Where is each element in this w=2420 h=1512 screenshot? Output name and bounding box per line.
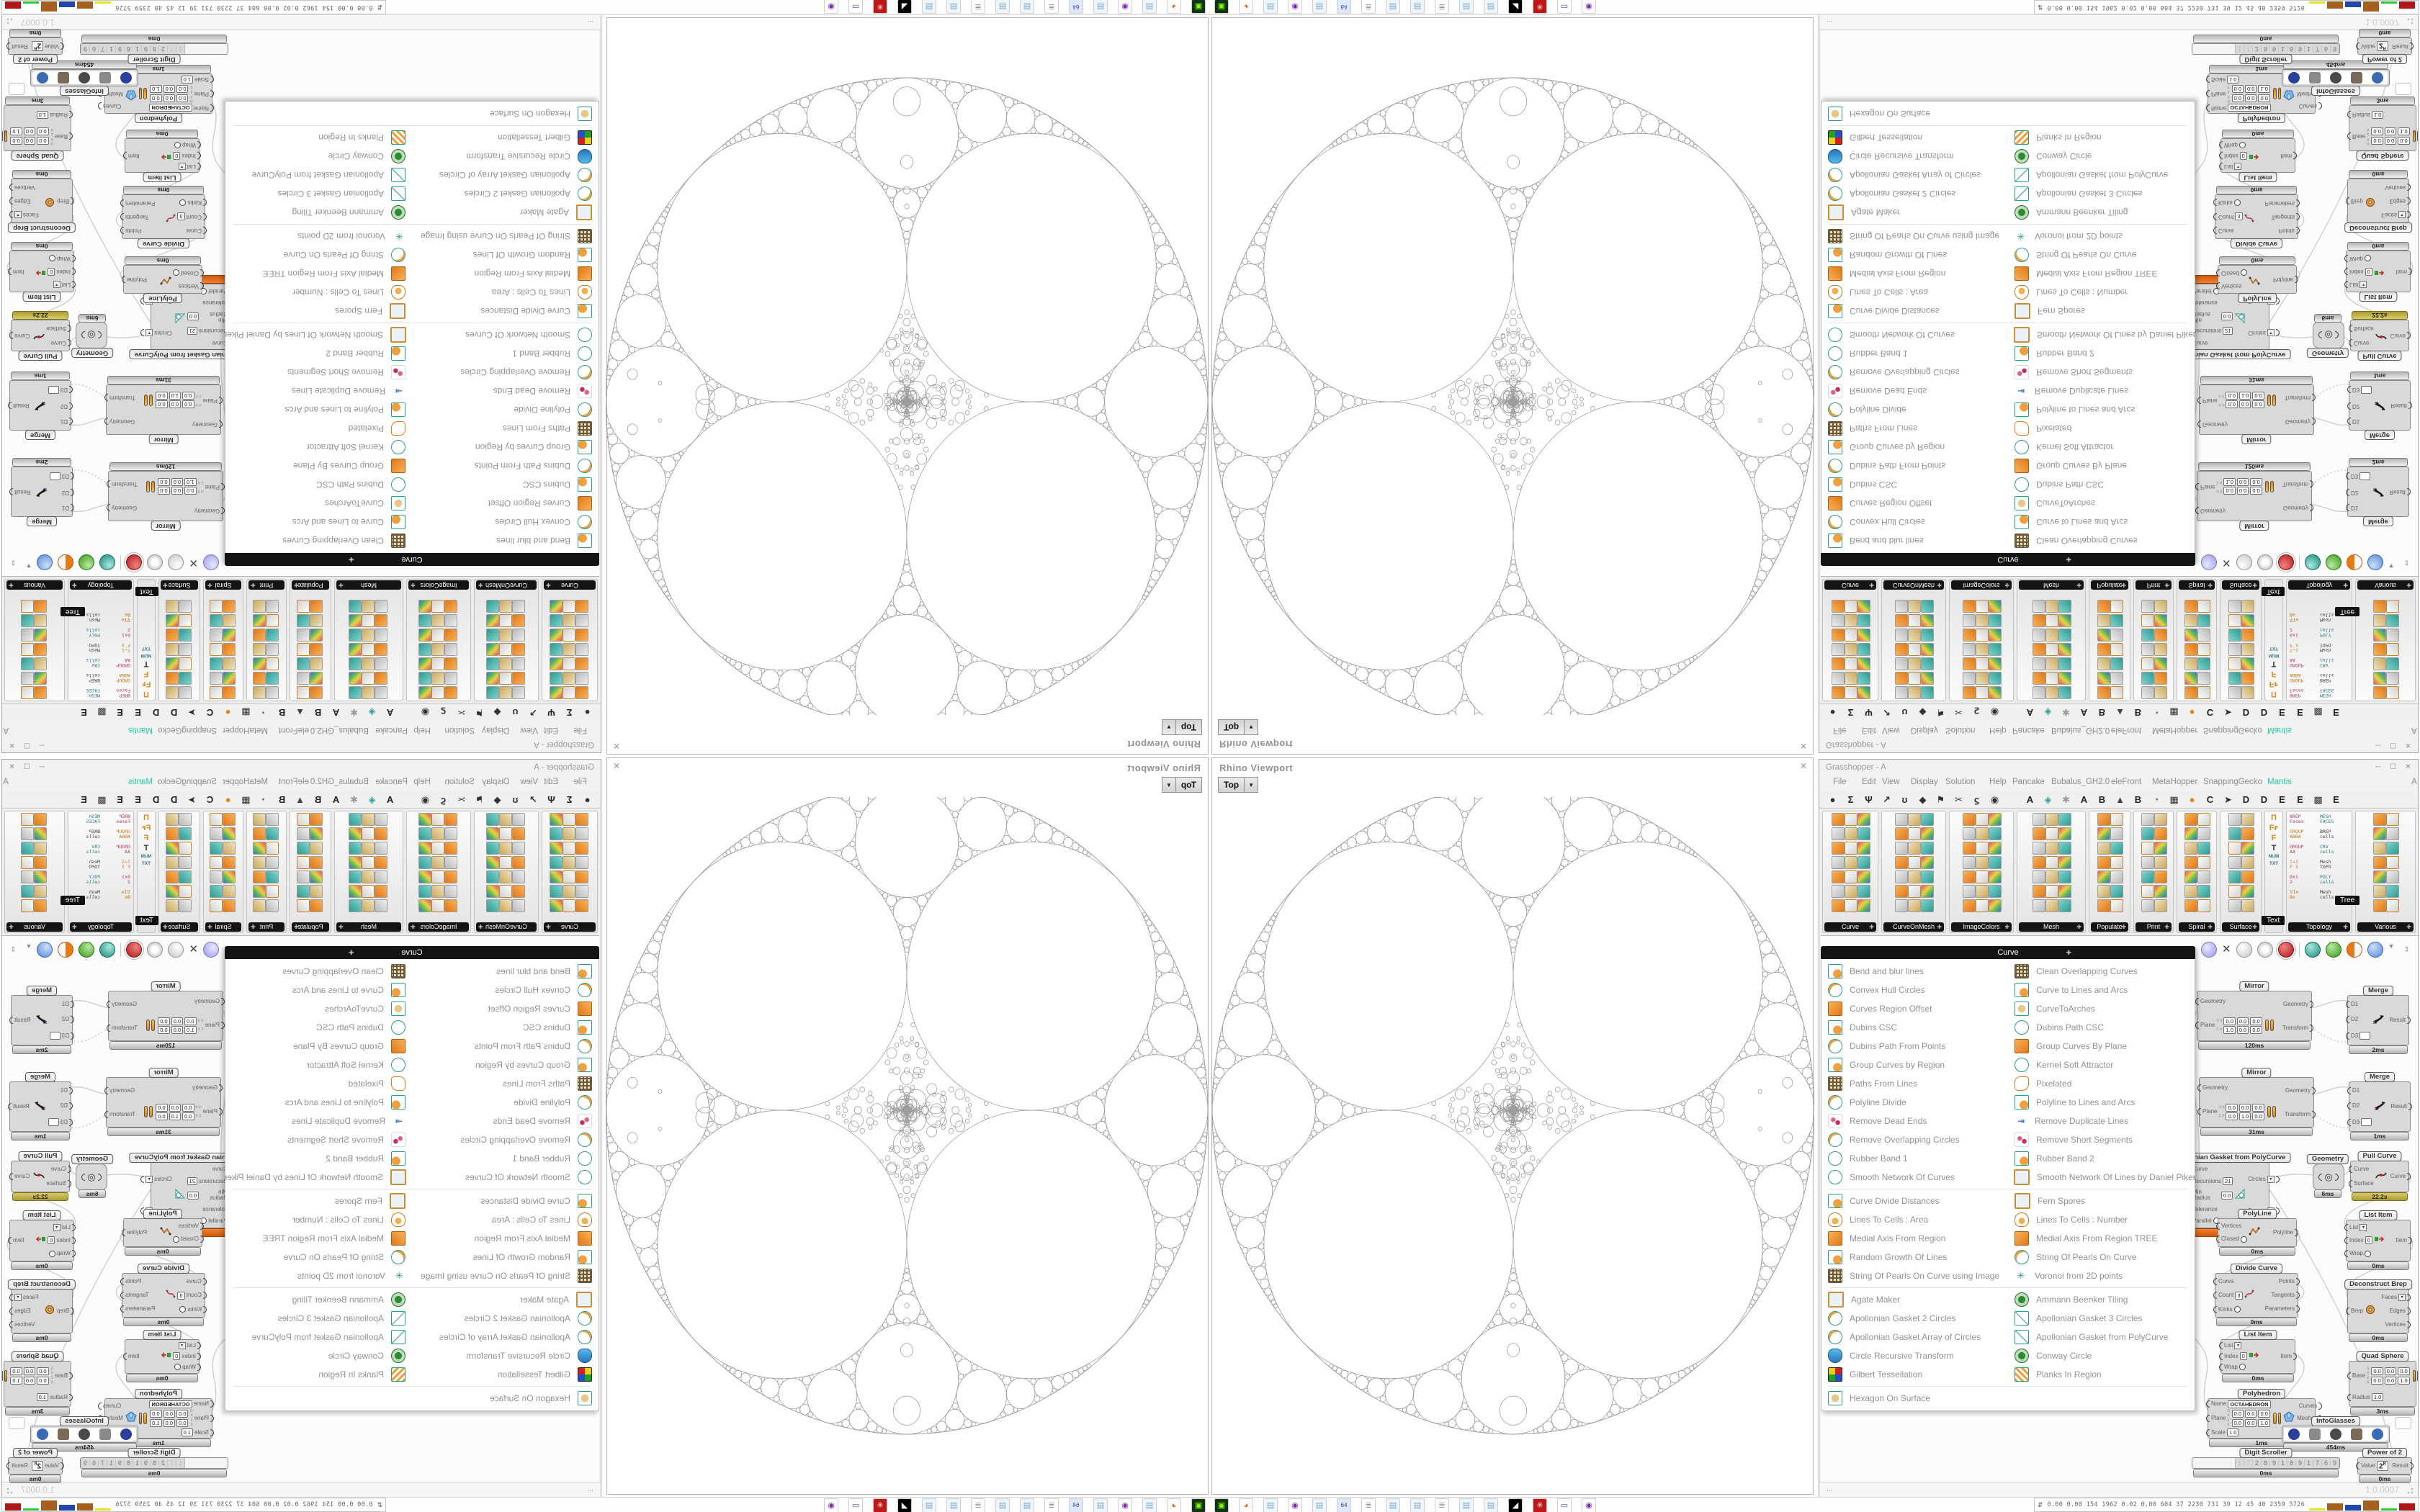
- grasshopper-canvas[interactable]: ✕▼⇕Curve✚Bend and blur linesClean Overla…: [2, 27, 599, 577]
- glasses-icon-4[interactable]: [2372, 1428, 2383, 1440]
- glyph-icon[interactable]: Π: [143, 814, 149, 822]
- component-icon[interactable]: [2141, 614, 2154, 627]
- plane-value-box[interactable]: 0.0: [176, 1419, 188, 1427]
- component-icon[interactable]: [1963, 813, 1976, 826]
- text-icon[interactable]: MESH FACES: [71, 687, 100, 698]
- chat-taskbar-icon[interactable]: ◉: [1118, 1498, 1132, 1512]
- menu-item-voronoi-from-2d-points[interactable]: Voronoi from 2D points: [225, 227, 412, 246]
- notepad-taskbar-icon[interactable]: ▤: [1410, 1498, 1425, 1512]
- value-box[interactable]: 0.0: [2221, 1192, 2233, 1200]
- text-icon[interactable]: CRV cells: [2320, 845, 2349, 855]
- menu-item-pixelated[interactable]: Pixelated: [225, 1074, 412, 1093]
- component-icon[interactable]: [2141, 827, 2154, 840]
- component-icon[interactable]: [375, 672, 387, 685]
- glasses-icon-1[interactable]: [99, 72, 111, 84]
- panel-label-Mesh[interactable]: Mesh✚: [336, 922, 401, 932]
- plane-value-box[interactable]: 0.0: [163, 1410, 175, 1418]
- menu-item-ammann-beenker-tiling[interactable]: Ammann Beenker Tiling: [225, 1290, 412, 1309]
- component-icon[interactable]: [349, 827, 362, 840]
- menu-item-agate-maker[interactable]: Agate Maker: [1821, 203, 2008, 222]
- component-icon[interactable]: [1832, 899, 1845, 912]
- output-port[interactable]: [8, 1237, 12, 1244]
- digit-cell[interactable]: 6: [89, 1459, 98, 1467]
- component-icon[interactable]: [563, 870, 575, 883]
- component-icon[interactable]: [179, 856, 192, 869]
- component-icon[interactable]: [349, 856, 362, 869]
- node-label-deconbrep[interactable]: Deconstruct Brep: [8, 222, 76, 233]
- component-icon[interactable]: [486, 870, 499, 883]
- output-port[interactable]: [104, 1087, 108, 1094]
- menu-item-bend-and-blur-lines[interactable]: Bend and blur lines: [1821, 531, 2008, 550]
- output-port[interactable]: [6, 42, 10, 50]
- component-icon[interactable]: [2154, 813, 2167, 826]
- notepad-taskbar-icon[interactable]: ▤: [1410, 0, 1425, 14]
- menu-item-apollonian-gasket-array-of-circles[interactable]: Apollonian Gasket Array of Circles: [412, 166, 599, 184]
- component-icon[interactable]: [2228, 686, 2241, 699]
- component-icon[interactable]: [266, 842, 279, 855]
- value-box[interactable]: 21: [2223, 327, 2233, 335]
- node-merge1[interactable]: D1D2D3Result: [2347, 995, 2409, 1045]
- component-icon[interactable]: [2141, 870, 2154, 883]
- component-icon[interactable]: [253, 614, 266, 627]
- node-label-polyhedron[interactable]: Polyhedron: [2238, 1389, 2285, 1399]
- component-icon[interactable]: [166, 657, 179, 670]
- text-icon[interactable]: T→1 F 3: [102, 642, 130, 652]
- component-icon[interactable]: [1989, 672, 2002, 685]
- output-port[interactable]: [120, 213, 124, 220]
- node-label-dividecurve[interactable]: Divide Curve: [2231, 1264, 2282, 1274]
- plane-value-box[interactable]: 0.0: [2252, 1112, 2264, 1120]
- component-icon[interactable]: [2033, 600, 2045, 613]
- scroll-taskbar-icon[interactable]: ≣: [971, 1498, 985, 1512]
- menu-help[interactable]: Help: [1989, 778, 2007, 786]
- menu-item-group-curves-by-plane[interactable]: Group Curves By Plane: [225, 1037, 412, 1056]
- component-icon[interactable]: [1857, 614, 1870, 627]
- ink-taskbar-icon[interactable]: ◢: [897, 1498, 912, 1512]
- node-label-digitscroller[interactable]: Digit Scroller: [2239, 54, 2292, 64]
- digit-cell[interactable]: 9: [81, 1459, 89, 1467]
- digit-scroller[interactable]: 172891891769: [81, 44, 228, 54]
- node-label-infoglasses[interactable]: InfoGlasses: [2311, 1416, 2360, 1426]
- component-icon[interactable]: [512, 629, 525, 642]
- component-icon[interactable]: [2197, 614, 2210, 627]
- component-icon[interactable]: [444, 813, 457, 826]
- text-icon[interactable]: 0∧1 2: [2290, 626, 2318, 637]
- empty-box[interactable]: [2361, 1118, 2372, 1126]
- plane-value-box[interactable]: 0.0: [156, 400, 167, 408]
- component-icon[interactable]: [166, 899, 179, 912]
- component-icon[interactable]: [486, 629, 499, 642]
- notepad-taskbar-icon[interactable]: ▤: [946, 1498, 961, 1512]
- tab-26[interactable]: ▩: [93, 707, 111, 719]
- component-icon[interactable]: [2228, 813, 2241, 826]
- plane-value-box[interactable]: 0.0: [2239, 1104, 2251, 1112]
- component-icon[interactable]: [362, 672, 375, 685]
- component-icon[interactable]: [2228, 842, 2241, 855]
- glasses-icon-0[interactable]: [120, 1428, 132, 1440]
- input-port[interactable]: [2344, 1224, 2348, 1231]
- text-icon[interactable]: 0∧1 2: [2290, 875, 2318, 886]
- node-label-merge2[interactable]: Merge: [2365, 1072, 2395, 1082]
- component-icon[interactable]: [1857, 672, 1870, 685]
- component-icon[interactable]: [310, 885, 323, 898]
- component-icon[interactable]: [575, 813, 588, 826]
- plane-value-box[interactable]: 1.0: [2223, 478, 2235, 486]
- plane-value-box[interactable]: 0.0: [158, 487, 169, 495]
- node-deconbrep[interactable]: BrepFaces▾EdgesVertices: [11, 179, 73, 223]
- input-port[interactable]: [2349, 325, 2352, 332]
- scroll-taskbar-icon[interactable]: ≣: [1435, 0, 1449, 14]
- value-box[interactable]: 1.0: [181, 1428, 193, 1436]
- component-icon[interactable]: [2097, 856, 2110, 869]
- node-merge2[interactable]: D1D2D3Result: [9, 380, 71, 431]
- toggle-circle[interactable]: [2234, 199, 2241, 206]
- tab-10[interactable]: A: [2021, 707, 2039, 718]
- menu-item-bend-and-blur-lines[interactable]: Bend and blur lines: [412, 531, 599, 550]
- panel-label-Various[interactable]: Various✚: [6, 922, 63, 932]
- red-display-icon[interactable]: [2278, 554, 2294, 570]
- component-icon[interactable]: [2228, 629, 2241, 642]
- node-label-listitem2[interactable]: List Item: [143, 1330, 181, 1340]
- component-icon[interactable]: [375, 600, 387, 613]
- component-icon[interactable]: [1963, 870, 1976, 883]
- component-icon[interactable]: [1857, 856, 1870, 869]
- tab-7[interactable]: ✂: [1950, 794, 1968, 806]
- menu-item-group-curves-by-plane[interactable]: Group Curves By Plane: [2008, 1037, 2195, 1056]
- component-icon[interactable]: [1845, 813, 1857, 826]
- maximize-button[interactable]: ☐: [22, 762, 32, 772]
- component-icon[interactable]: [2184, 885, 2197, 898]
- component-icon[interactable]: [2197, 813, 2210, 826]
- download-flag-icon[interactable]: ▾: [2398, 1294, 2406, 1301]
- component-icon[interactable]: [253, 643, 266, 656]
- chat-taskbar-icon[interactable]: ◉: [1118, 0, 1132, 14]
- component-icon[interactable]: [2058, 842, 2071, 855]
- digit-cell[interactable]: 9: [2331, 45, 2339, 53]
- balloon-display-icon[interactable]: [2201, 554, 2217, 570]
- component-icon[interactable]: [297, 657, 310, 670]
- node-label-pullcurve[interactable]: Pull Curve: [2358, 351, 2402, 361]
- menu-item-apollonian-gasket-2-circles[interactable]: Apollonian Gasket 2 Circles: [1821, 1309, 2008, 1328]
- component-icon[interactable]: [1895, 643, 1908, 656]
- component-icon[interactable]: [499, 643, 512, 656]
- menu-item-group-curves-by-region[interactable]: Group Curves by Region: [412, 1056, 599, 1074]
- input-port[interactable]: [2344, 1250, 2348, 1257]
- plane-value-box[interactable]: 0.0: [156, 392, 167, 400]
- glasses-icon-2[interactable]: [79, 1428, 90, 1440]
- component-icon[interactable]: [34, 899, 47, 912]
- component-icon[interactable]: [431, 600, 444, 613]
- component-icon[interactable]: [1976, 629, 1989, 642]
- notepad-taskbar-icon[interactable]: ▤: [946, 0, 961, 14]
- tab-12[interactable]: ✱: [345, 794, 363, 806]
- component-icon[interactable]: [349, 657, 362, 670]
- node-label-mirror2[interactable]: Mirror: [148, 434, 178, 444]
- component-icon[interactable]: [179, 629, 192, 642]
- menu-item-pixelated[interactable]: Pixelated: [2008, 1074, 2195, 1093]
- component-icon[interactable]: [2045, 842, 2058, 855]
- component-icon[interactable]: [362, 870, 375, 883]
- component-icon[interactable]: [2097, 813, 2110, 826]
- component-icon[interactable]: [2241, 600, 2254, 613]
- tab-23[interactable]: D: [2255, 794, 2273, 805]
- ring-display-icon[interactable]: [2257, 942, 2273, 958]
- sep-display-icon[interactable]: [2299, 942, 2300, 957]
- menu-item-smooth-network-of-curves[interactable]: Smooth Network Of Curves: [413, 1168, 599, 1187]
- tab-10[interactable]: A: [381, 707, 399, 718]
- node-label-quadsphere[interactable]: Quad Sphere: [2356, 1351, 2408, 1362]
- plane-value-box[interactable]: 0.0: [10, 138, 22, 145]
- component-icon[interactable]: [2197, 856, 2210, 869]
- input-port[interactable]: [2318, 331, 2322, 338]
- input-port[interactable]: [98, 1174, 102, 1181]
- flyout-header[interactable]: Curve✚: [1821, 553, 2195, 566]
- plane-value-box[interactable]: 0.0: [2385, 128, 2396, 136]
- plane-value-box[interactable]: 0.0: [2385, 138, 2396, 145]
- badge-taskbar-icon[interactable]: ✳: [873, 0, 887, 14]
- digit-cell[interactable]: 9: [141, 45, 150, 53]
- menu-item-paths-from-lines[interactable]: Paths From Lines: [412, 1074, 599, 1093]
- notepad-taskbar-icon[interactable]: ▤: [1386, 1498, 1400, 1512]
- empty-box[interactable]: [2361, 386, 2372, 394]
- menu-item-remove-dead-ends[interactable]: Remove Dead Ends: [412, 1112, 599, 1130]
- component-icon[interactable]: [550, 827, 563, 840]
- component-icon[interactable]: [1989, 629, 2002, 642]
- component-icon[interactable]: [418, 813, 431, 826]
- component-icon[interactable]: [418, 870, 431, 883]
- output-port[interactable]: [122, 276, 125, 283]
- scroll-taskbar-icon[interactable]: ≣: [1435, 1498, 1449, 1512]
- rhino-viewport-panel[interactable]: Rhino Viewport ✕ Top ▼: [606, 757, 1209, 1495]
- component-icon[interactable]: [21, 885, 34, 898]
- notepad-taskbar-icon[interactable]: ▤: [1093, 1498, 1108, 1512]
- component-icon[interactable]: [179, 842, 192, 855]
- component-icon[interactable]: [1976, 643, 1989, 656]
- menu-item-dubins-path-csc[interactable]: Dubins Path CSC: [2008, 475, 2195, 494]
- node-quadsphere[interactable]: Baseo x0.00.00.0z x0.00.01.0Radius1.0Sph…: [2349, 105, 2416, 151]
- component-icon[interactable]: [444, 657, 457, 670]
- menu-item-remove-short-segments[interactable]: Remove Short Segments: [225, 1130, 412, 1149]
- node-label-geometry[interactable]: Geometry: [71, 348, 113, 358]
- component-icon[interactable]: [166, 672, 179, 685]
- node-label-polyline[interactable]: PolyLine: [143, 1209, 182, 1219]
- tab-15[interactable]: ▲: [291, 707, 309, 718]
- scroll-taskbar-icon[interactable]: ≣: [1044, 1498, 1059, 1512]
- component-icon[interactable]: [349, 885, 362, 898]
- menu-item-rubber-band-2[interactable]: Rubber Band 2: [225, 344, 412, 363]
- component-icon[interactable]: [166, 614, 179, 627]
- component-icon[interactable]: [431, 885, 444, 898]
- menu-item-remove-duplicate-lines[interactable]: Remove Duplicate Lines: [2008, 382, 2195, 400]
- menu-item-group-curves-by-region[interactable]: Group Curves by Region: [1821, 1056, 2008, 1074]
- output-port[interactable]: [107, 1025, 110, 1032]
- component-icon[interactable]: [310, 643, 323, 656]
- node-geometry[interactable]: ◎: [2313, 1164, 2344, 1191]
- toggle-circle[interactable]: [179, 199, 186, 206]
- panel-label-Topology[interactable]: Topology✚: [2288, 922, 2350, 932]
- component-icon[interactable]: [575, 842, 588, 855]
- menu-mantis[interactable]: Mantis: [2267, 726, 2292, 734]
- component-icon[interactable]: [444, 842, 457, 855]
- component-icon[interactable]: [375, 614, 387, 627]
- component-icon[interactable]: [253, 842, 266, 855]
- component-icon[interactable]: [1832, 672, 1845, 685]
- menu-item-polyline-divide[interactable]: Polyline Divide: [1821, 1093, 2008, 1112]
- digit-cell[interactable]: 1: [107, 45, 115, 53]
- name-value-box[interactable]: OCTAHEDRON: [2228, 104, 2270, 112]
- close-button[interactable]: ✕: [6, 740, 17, 750]
- component-icon[interactable]: [2386, 899, 2399, 912]
- component-icon[interactable]: [375, 686, 387, 699]
- component-icon[interactable]: [563, 856, 575, 869]
- plane-value-box[interactable]: 0.0: [2226, 1112, 2237, 1120]
- menu-item-fern-spores[interactable]: Fern Spores: [225, 1192, 412, 1210]
- component-icon[interactable]: [563, 813, 575, 826]
- component-icon[interactable]: [2241, 629, 2254, 642]
- menu-item-curvetoarches[interactable]: CurveToArches: [2008, 999, 2195, 1018]
- node-label-merge1[interactable]: Merge: [27, 986, 57, 996]
- tab-6[interactable]: ⚑: [470, 707, 488, 719]
- component-icon[interactable]: [2058, 600, 2071, 613]
- tab-8[interactable]: ϛ: [1968, 707, 1986, 718]
- sphere-display-icon[interactable]: [2236, 554, 2252, 570]
- tab-15[interactable]: ▲: [2111, 794, 2129, 805]
- component-icon[interactable]: [575, 870, 588, 883]
- name-value-box[interactable]: OCTAHEDRON: [2228, 1400, 2270, 1408]
- plane-value-box[interactable]: 0.0: [169, 400, 181, 408]
- tab-25[interactable]: E: [111, 707, 129, 718]
- node-label-pullcurve[interactable]: Pull Curve: [2358, 1151, 2402, 1161]
- component-icon[interactable]: [575, 856, 588, 869]
- value-box[interactable]: 0.0: [187, 312, 199, 320]
- menu-item-circle-recursive-transform[interactable]: Circle Recursive Transform: [1821, 147, 2008, 166]
- digit-cell[interactable]: 8: [2262, 45, 2270, 53]
- menu-item-curve-divide-distances[interactable]: Curve Divide Distances: [1821, 302, 2008, 320]
- component-icon[interactable]: [2033, 885, 2045, 898]
- tab-11[interactable]: ◈: [2039, 794, 2057, 806]
- scroll-taskbar-icon[interactable]: ≣: [1044, 0, 1059, 14]
- glyph-icon[interactable]: Π: [143, 690, 149, 698]
- menu-item-gilbert-tessellation[interactable]: Gilbert Tessellation: [1821, 1365, 2008, 1384]
- component-icon[interactable]: [1989, 827, 2002, 840]
- menu-item-random-growth-of-lines[interactable]: Random Growth Of Lines: [412, 246, 599, 264]
- node-listitem2[interactable]: List▾Index0WrapItem: [2220, 138, 2295, 173]
- plane-value-box[interactable]: 0.0: [158, 1017, 169, 1025]
- component-icon[interactable]: [1832, 643, 1845, 656]
- component-icon[interactable]: [2045, 899, 2058, 912]
- tab-20[interactable]: C: [201, 794, 219, 805]
- input-port[interactable]: [2344, 281, 2348, 288]
- menu-item-pixelated[interactable]: Pixelated: [2008, 419, 2195, 438]
- node-merge2[interactable]: D1D2D3Result: [2349, 380, 2411, 431]
- plane-value-box[interactable]: 0.0: [171, 1026, 183, 1034]
- chat-taskbar-icon[interactable]: ◉: [1288, 0, 1302, 14]
- plane-value-box[interactable]: 0.0: [2258, 1410, 2269, 1418]
- green-display-icon[interactable]: [79, 554, 94, 570]
- download-flag-icon[interactable]: ▾: [179, 1342, 186, 1349]
- menu-right-a[interactable]: A: [2411, 726, 2417, 734]
- component-icon[interactable]: [512, 657, 525, 670]
- window-taskbar-icon[interactable]: ▭: [1557, 1498, 1572, 1512]
- ring-display-icon[interactable]: [147, 942, 163, 958]
- menu-bubalus_gh2.0[interactable]: Bubalus_GH2.0: [310, 726, 369, 734]
- component-icon[interactable]: [575, 614, 588, 627]
- plane-value-box[interactable]: 0.0: [2237, 487, 2249, 495]
- input-port[interactable]: [2349, 339, 2352, 346]
- node-powerof2[interactable]: Value2RResult: [8, 1457, 63, 1475]
- menu-item-pixelated[interactable]: Pixelated: [225, 419, 412, 438]
- component-icon[interactable]: [486, 686, 499, 699]
- component-icon[interactable]: [563, 657, 575, 670]
- digit-cell[interactable]: 7: [2244, 45, 2253, 53]
- component-icon[interactable]: [1921, 827, 1934, 840]
- node-listitem2[interactable]: List▾Index0WrapItem: [125, 138, 200, 173]
- plane-value-box[interactable]: 0.0: [10, 1367, 22, 1375]
- input-port[interactable]: [2347, 1087, 2351, 1094]
- component-icon[interactable]: [418, 899, 431, 912]
- plane-value-box[interactable]: 0.0: [2226, 1104, 2237, 1112]
- component-icon[interactable]: [2386, 643, 2399, 656]
- component-icon[interactable]: [2058, 899, 2071, 912]
- node-infoglasses[interactable]: [2282, 69, 2390, 86]
- notepad-taskbar-icon[interactable]: ▤: [995, 1498, 1010, 1512]
- component-icon[interactable]: [1832, 885, 1845, 898]
- plane-value-box[interactable]: 0.0: [2237, 1026, 2249, 1034]
- tab-22[interactable]: D: [165, 707, 183, 718]
- component-icon[interactable]: [512, 643, 525, 656]
- text-icon[interactable]: ⊽Ie Be: [102, 611, 130, 622]
- menu-item-rubber-band-1[interactable]: Rubber Band 1: [412, 1149, 599, 1168]
- toggle-circle[interactable]: [173, 1236, 179, 1243]
- value-box[interactable]: 1.0: [2372, 111, 2383, 119]
- component-icon[interactable]: [1908, 827, 1921, 840]
- component-icon[interactable]: [1921, 899, 1934, 912]
- component-icon[interactable]: [1908, 870, 1921, 883]
- plane-value-box[interactable]: 1.0: [150, 85, 161, 93]
- terminal-taskbar-icon[interactable]: ▣: [1214, 1498, 1229, 1512]
- tab-3[interactable]: ↗: [1878, 794, 1896, 806]
- component-icon[interactable]: [1895, 600, 1908, 613]
- component-icon[interactable]: [550, 686, 563, 699]
- node-polyline[interactable]: VerticesClosedPolyline: [2218, 1218, 2297, 1247]
- component-icon[interactable]: [2197, 672, 2210, 685]
- tab-3[interactable]: ↗: [1878, 707, 1896, 719]
- node-label-merge2[interactable]: Merge: [2365, 430, 2395, 440]
- component-icon[interactable]: [2228, 899, 2241, 912]
- plane-value-box[interactable]: 0.0: [2223, 1017, 2235, 1025]
- component-icon[interactable]: [1963, 856, 1976, 869]
- component-icon[interactable]: [2045, 827, 2058, 840]
- node-mirror1[interactable]: GeometryPlaneo x0.00.00.0z x1.00.00.0Geo…: [2197, 991, 2312, 1041]
- node-label-listitem1[interactable]: List Item: [22, 292, 60, 302]
- node-pullcurve[interactable]: CurveSurfaceCurve: [2350, 1161, 2409, 1192]
- tab-21[interactable]: ➤: [2219, 707, 2237, 719]
- glyph-icon[interactable]: Fꜰ: [2269, 680, 2279, 688]
- component-icon[interactable]: [179, 813, 192, 826]
- input-port[interactable]: [2347, 418, 2351, 425]
- component-icon[interactable]: [2197, 686, 2210, 699]
- glyph-icon[interactable]: T: [2272, 660, 2277, 667]
- text-icon[interactable]: BREP Faces: [102, 687, 130, 698]
- node-label-geometry[interactable]: Geometry: [71, 1154, 113, 1164]
- menu-item-paths-from-lines[interactable]: Paths From Lines: [1821, 1074, 2008, 1093]
- panel-label-Surface[interactable]: Surface✚: [161, 922, 198, 932]
- menu-item-dubins-path-from-points[interactable]: Dubins Path From Points: [1821, 1037, 2008, 1056]
- node-label-listitem1[interactable]: List Item: [2359, 292, 2397, 302]
- component-icon[interactable]: [21, 629, 34, 642]
- menu-item-ammann-beenker-tiling[interactable]: Ammann Beenker Tiling: [2008, 1290, 2195, 1309]
- component-icon[interactable]: [575, 600, 588, 613]
